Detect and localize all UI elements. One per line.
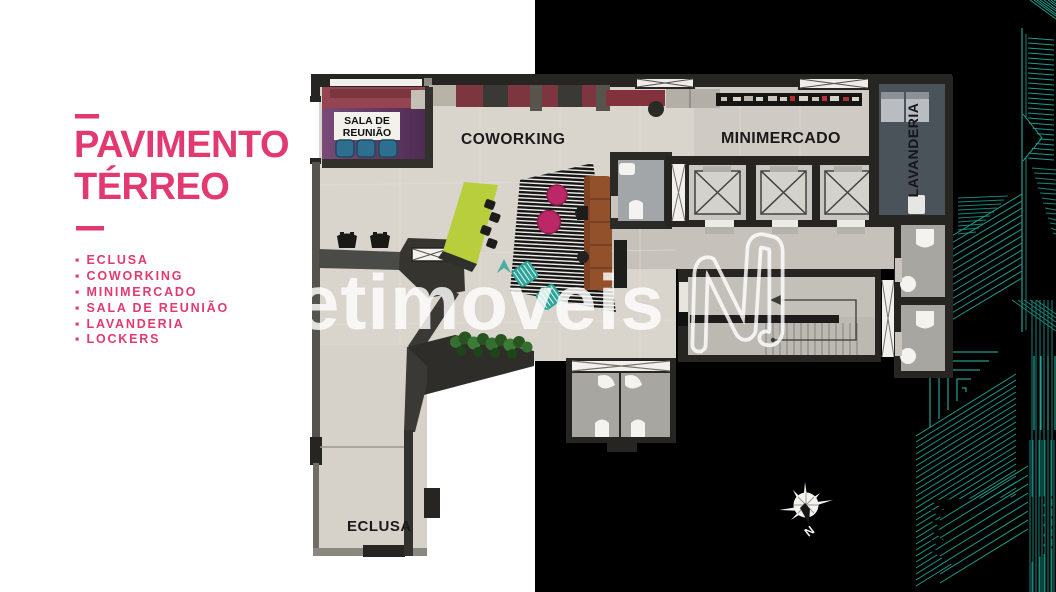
- svg-text:▪ SALA DE REUNIÃO: ▪ SALA DE REUNIÃO: [75, 300, 229, 315]
- svg-text:▪ LOCKERS: ▪ LOCKERS: [75, 332, 160, 346]
- svg-text:TÉRREO: TÉRREO: [74, 164, 229, 208]
- svg-text:▪ LAVANDERIA: ▪ LAVANDERIA: [75, 317, 185, 331]
- svg-text:LAVANDERIA: LAVANDERIA: [905, 103, 921, 198]
- svg-text:REUNIÃO: REUNIÃO: [343, 126, 391, 139]
- svg-text:▪ ECLUSA: ▪ ECLUSA: [75, 253, 149, 267]
- svg-text:▪ MINIMERCADO: ▪ MINIMERCADO: [75, 285, 197, 299]
- svg-text:▪ COWORKING: ▪ COWORKING: [75, 269, 183, 283]
- svg-text:etimoveis: etimoveis: [296, 258, 665, 346]
- svg-text:COWORKING: COWORKING: [461, 131, 565, 148]
- svg-text:PAVIMENTO: PAVIMENTO: [74, 124, 289, 166]
- svg-text:ECLUSA: ECLUSA: [347, 518, 412, 535]
- svg-text:SALA DE: SALA DE: [344, 115, 390, 127]
- svg-text:MINIMERCADO: MINIMERCADO: [721, 130, 841, 147]
